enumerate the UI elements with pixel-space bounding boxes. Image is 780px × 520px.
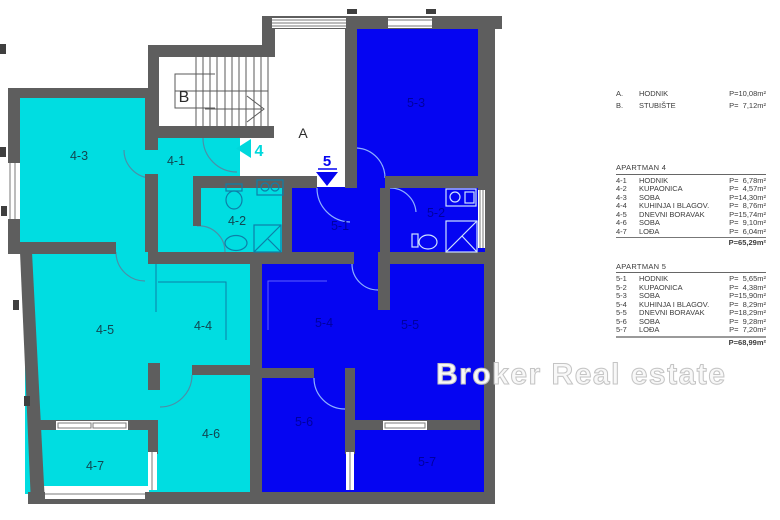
legend-total: P=65,29m² — [616, 237, 766, 248]
window — [383, 421, 427, 430]
room-label-5-4: 5-4 — [315, 316, 333, 330]
floorplan-page: 4 5 B A 4-3 4-1 4-2 4-4 4-5 4-6 4-7 5-3 … — [0, 0, 780, 520]
wall-segment — [145, 174, 158, 252]
window — [6, 163, 20, 219]
legend-room-area: P= 7,12m² — [716, 100, 766, 112]
wall-segment — [380, 188, 390, 264]
legend-row: B. STUBIŠTE P= 7,12m² — [616, 100, 766, 112]
legend-apartment-title: APARTMAN 4 — [616, 164, 766, 175]
legend-total: P=68,99m² — [616, 336, 766, 348]
legend-room-area: P= 7,20m² — [716, 326, 766, 335]
wall-segment — [478, 16, 495, 190]
tick-mark — [347, 9, 357, 14]
wall-segment — [148, 363, 160, 390]
tick-mark — [1, 206, 7, 216]
wall-segment — [148, 252, 354, 264]
room-label-5-6: 5-6 — [295, 415, 313, 429]
legend-common-areas: A. HODNIK P=10,08m² B. STUBIŠTE P= 7,12m… — [616, 88, 766, 112]
wall-segment — [148, 45, 275, 57]
legend-room-id: 4-7 — [616, 228, 639, 237]
room-label-5-2: 5-2 — [427, 206, 445, 220]
room-label-4-4: 4-4 — [194, 319, 212, 333]
legend-room-area: P= 6,04m² — [716, 228, 766, 237]
hall-label: A — [298, 125, 308, 141]
tick-mark — [13, 300, 19, 310]
room-label-5-5: 5-5 — [401, 318, 419, 332]
legend-room-name: LOĐA — [639, 228, 716, 237]
room-label-5-7: 5-7 — [418, 455, 436, 469]
room-label-5-3: 5-3 — [407, 96, 425, 110]
room-label-4-2: 4-2 — [228, 214, 246, 228]
legend-room-name: STUBIŠTE — [639, 100, 716, 112]
legend-row: 5-7 LOĐA P= 7,20m² — [616, 326, 766, 335]
room-label-4-7: 4-7 — [86, 459, 104, 473]
wall-segment — [390, 252, 495, 264]
tick-mark — [426, 9, 436, 14]
watermark: Broker Real estate — [436, 358, 726, 392]
room-label-4-6: 4-6 — [202, 427, 220, 441]
legend-apartment-4: APARTMAN 4 4-1 HODNIK P= 6,78m² 4-2 KUPA… — [616, 164, 766, 248]
legend-room-area: P=10,08m² — [716, 88, 766, 100]
tick-mark — [0, 147, 6, 157]
room-label-5-1: 5-1 — [331, 219, 349, 233]
legend-room-id: A. — [616, 88, 639, 100]
legend: A. HODNIK P=10,08m² B. STUBIŠTE P= 7,12m… — [616, 88, 766, 347]
window — [478, 190, 485, 248]
wall-segment — [485, 188, 495, 252]
wall-segment — [145, 98, 158, 150]
room-label-4-5: 4-5 — [96, 323, 114, 337]
legend-room-name: LOĐA — [639, 326, 716, 335]
room-label-4-3: 4-3 — [70, 149, 88, 163]
wall-segment — [193, 188, 201, 226]
wall-segment — [8, 88, 155, 98]
wall-segment — [345, 28, 357, 188]
wall-segment — [192, 365, 262, 375]
legend-row: A. HODNIK P=10,08m² — [616, 88, 766, 100]
wall-segment — [345, 368, 355, 454]
tick-mark — [0, 44, 6, 54]
legend-apartment-title: APARTMAN 5 — [616, 263, 766, 274]
apt4-arrow-label: 4 — [255, 143, 264, 160]
room-4-6-4-7 — [25, 375, 256, 494]
wall-segment — [258, 368, 314, 378]
tick-mark — [24, 396, 30, 406]
legend-row: 4-7 LOĐA P= 6,04m² — [616, 228, 766, 237]
stairwell-label: B — [179, 89, 190, 106]
room-label-4-1: 4-1 — [167, 154, 185, 168]
apt4-entrance-arrow: 4 — [236, 139, 264, 160]
legend-room-name: HODNIK — [639, 88, 716, 100]
legend-room-id: B. — [616, 100, 639, 112]
wall-segment — [148, 420, 158, 454]
room-4-3 — [14, 93, 154, 253]
window — [56, 421, 128, 430]
wall-segment — [148, 126, 274, 138]
legend-apartment-5: APARTMAN 5 5-1 HODNIK P= 5,65m² 5-2 KUPA… — [616, 263, 766, 348]
legend-room-id: 5-7 — [616, 326, 639, 335]
apt5-arrow-label: 5 — [323, 153, 331, 170]
wall-segment — [292, 176, 317, 188]
